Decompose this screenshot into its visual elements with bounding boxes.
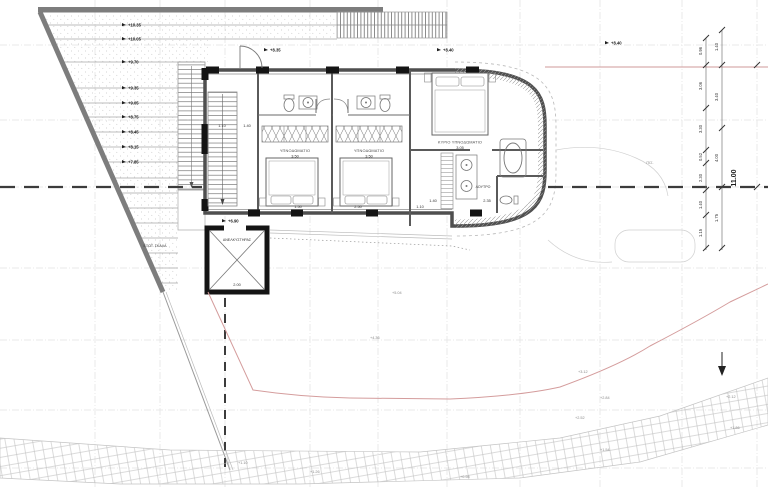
- entry-door: [240, 46, 262, 68]
- spot-level: +4.36: [370, 336, 380, 340]
- spot-level: +2.12: [726, 395, 736, 399]
- spot-level: +5.04: [392, 291, 402, 295]
- dim-total: 11.00: [731, 169, 738, 186]
- pergola-strip: [337, 12, 447, 38]
- level-marker-pergola: +8.40: [443, 48, 454, 53]
- dim-outer-2: 3.40: [714, 92, 719, 101]
- level-marker: +8.45: [128, 130, 139, 135]
- pool-label: ΠΙΣ.: [646, 161, 653, 165]
- external-stair-label: ΕΞΩΤ. ΣΚΑΛΑ: [143, 244, 167, 248]
- level-marker: +9.35: [128, 86, 139, 91]
- sink-drain: [466, 164, 468, 166]
- level-marker: +8.15: [128, 145, 139, 150]
- dim-inner-7: 1.15: [698, 228, 703, 237]
- level-marker: +7.85: [128, 160, 139, 165]
- wardrobe: [262, 126, 328, 142]
- bedroom-1-label: ΥΠΝΟΔΩΜΑΤΙΟ: [280, 148, 310, 153]
- bedroom-2-dim: 3.50: [365, 154, 373, 159]
- bed: [266, 158, 318, 206]
- bath-dim-1: 1.40: [429, 198, 437, 203]
- linen-shelves: [441, 153, 453, 209]
- sink-drain: [365, 102, 367, 104]
- dim-outer-1: 1.40: [714, 42, 719, 51]
- elevator-label: ΑΝΕΛΚΥΣΤΗΡΑΣ: [223, 238, 252, 242]
- dim-outer-3: 4.00: [714, 153, 719, 162]
- sink-drain: [307, 102, 309, 104]
- level-marker-right: +8.40: [611, 41, 622, 46]
- level-marker: +8.75: [128, 115, 139, 120]
- stair-dim-1: 1.10: [218, 123, 226, 128]
- spot-level: +1.54: [600, 448, 610, 452]
- interior-stair: [208, 92, 237, 206]
- dim-outer-4: 1.75: [714, 213, 719, 222]
- spot-level: +1.26: [310, 470, 320, 474]
- wall-dim-3: 1.10: [416, 204, 424, 209]
- spot-level: +2.84: [600, 396, 610, 400]
- wardrobe: [336, 126, 402, 142]
- red-contour-line: [208, 284, 768, 399]
- spot-level: +1.86: [730, 426, 740, 430]
- bed: [432, 73, 488, 135]
- bedroom-1-dim: 3.50: [291, 154, 299, 159]
- spot-level: +3.12: [578, 370, 588, 374]
- elevator-door-gap: [224, 225, 246, 231]
- floor-plan-drawing: ΕΞΩΤ. ΣΚΑΛΑ: [0, 0, 768, 487]
- bedroom-2-label: ΥΠΝΟΔΩΜΑΤΙΟ: [354, 148, 384, 153]
- terrace-contour-2: [556, 147, 668, 196]
- master-bedroom-dim: 3.05: [456, 145, 464, 150]
- building: ΥΠΝΟΔΩΜΑΤΙΟ 3.50 ΥΠΝΟΔΩΜΑΤΙΟ 3.50: [202, 46, 557, 236]
- spot-level: +1.10: [238, 461, 248, 465]
- level-marker: +10.05: [128, 37, 142, 42]
- bed: [340, 158, 392, 206]
- wall-dim-2: 2.50: [354, 204, 362, 209]
- balcony-edges: [270, 230, 470, 250]
- spot-level: +0.98: [460, 475, 470, 479]
- floor-plan-sheet: ΕΞΩΤ. ΣΚΑΛΑ: [0, 0, 768, 487]
- boundary-wall-top: [38, 7, 383, 13]
- terrace-contour: [548, 240, 612, 262]
- pool-contours: [548, 147, 695, 262]
- dim-inner-6: 1.40: [698, 200, 703, 209]
- level-marker: +9.05: [128, 101, 139, 106]
- master-bedroom-label: ΚΥΡΙΟ ΥΠΝΟΔΩΜΑΤΙΟ: [438, 140, 482, 145]
- level-marker-hall: +6.90: [228, 219, 239, 224]
- dim-inner-2: 3.06: [698, 81, 703, 90]
- dim-inner-5: 2.30: [698, 173, 703, 182]
- slope-arrow: [718, 352, 726, 376]
- bath-dim-2: 2.35: [483, 198, 491, 203]
- elevator-shaft: ΑΝΕΛΚΥΣΤΗΡΑΣ 2.00: [207, 225, 267, 293]
- wall-dim-1: 1.50: [294, 204, 302, 209]
- sink-drain: [466, 185, 468, 187]
- dim-inner-3: 3.30: [698, 124, 703, 133]
- dimension-chains: 0.96 3.06 3.30 0.52 2.30 1.40 1.15 1.40 …: [698, 27, 760, 376]
- dim-inner-1: 0.96: [698, 46, 703, 55]
- dim-inner-4: 0.52: [698, 152, 703, 161]
- elevator-dim: 2.00: [233, 282, 241, 287]
- stair-dim-2: 1.40: [243, 123, 251, 128]
- level-marker: +10.35: [128, 23, 142, 28]
- level-marker-door: +8.35: [270, 48, 281, 53]
- external-stair-landing: [178, 190, 205, 230]
- master-bath-label: ΛΟΥΤΡΟ: [476, 185, 491, 189]
- spot-level: +2.52: [575, 416, 585, 420]
- boundary-line-lower-2: [166, 292, 233, 470]
- level-marker: +9.70: [128, 60, 139, 65]
- pool-outline: [615, 230, 695, 262]
